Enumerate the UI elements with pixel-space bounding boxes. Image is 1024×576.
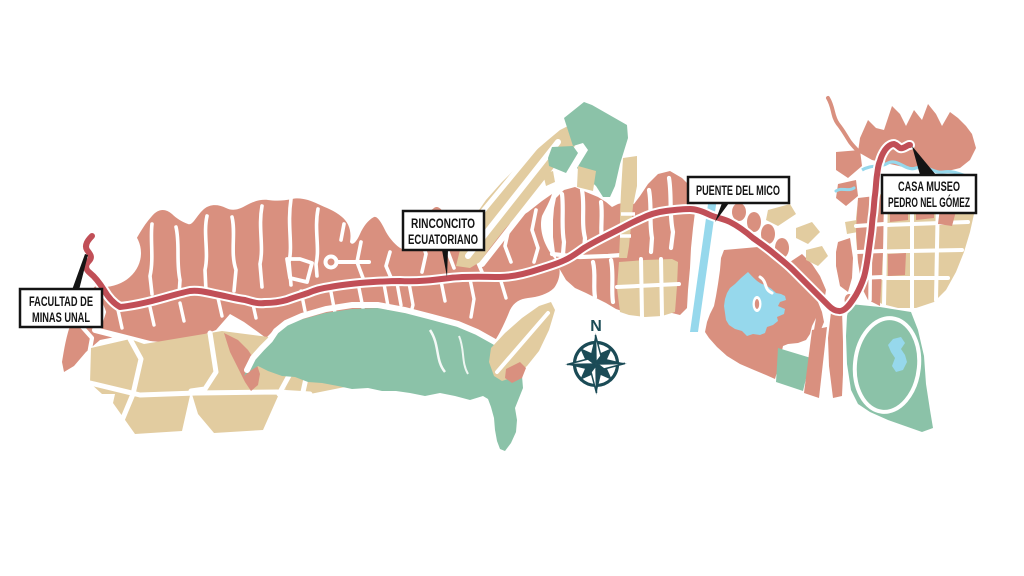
svg-text:CASA MUSEO: CASA MUSEO: [898, 179, 960, 194]
svg-text:PEDRO NEL GÓMEZ: PEDRO NEL GÓMEZ: [888, 195, 970, 210]
svg-text:FACULTAD DE: FACULTAD DE: [29, 294, 93, 309]
svg-text:N: N: [590, 318, 602, 335]
svg-text:ECUATORIANO: ECUATORIANO: [408, 232, 478, 247]
svg-text:MINAS UNAL: MINAS UNAL: [32, 310, 90, 325]
svg-text:RINCONCITO: RINCONCITO: [411, 216, 475, 231]
svg-text:PUENTE DEL MICO: PUENTE DEL MICO: [696, 183, 780, 198]
